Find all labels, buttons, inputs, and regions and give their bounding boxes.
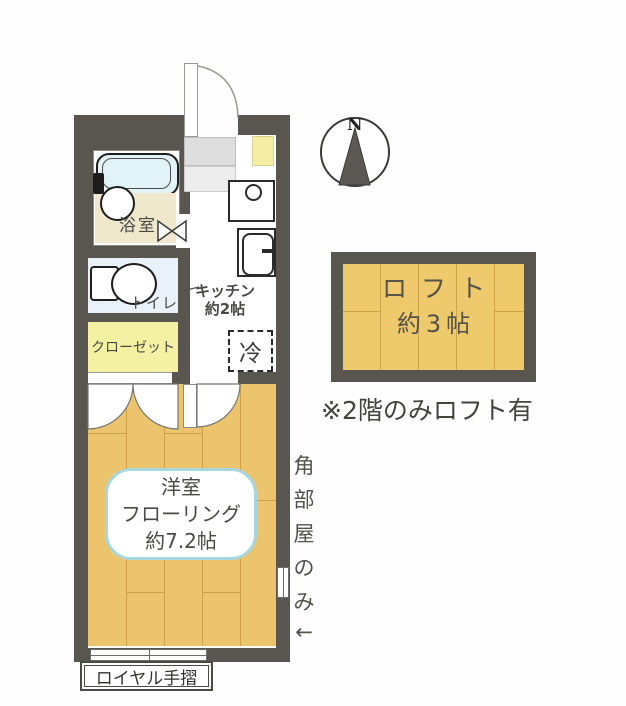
toilet-label: トイレ [130, 292, 178, 313]
corner-room-note: 角 部 屋 の み ← [291, 450, 317, 644]
kitchen-size-label: 約2帖 [194, 299, 256, 317]
corner-note-char: の [294, 552, 315, 582]
corner-note-char: 屋 [294, 518, 315, 548]
wall-top-left [74, 115, 184, 135]
shoe-cabinet [252, 136, 274, 166]
window-east [277, 567, 289, 598]
sink-basin [242, 233, 274, 276]
floorplan-canvas: 浴室 トイレ クローゼット キッチン 約2帖 冷 洋室 [0, 0, 626, 706]
wall-pier-center [172, 372, 190, 384]
fridge-label: 冷 [239, 334, 262, 368]
bathtub-inner-rim [102, 158, 171, 189]
bathroom-label: 浴室 [110, 212, 166, 234]
window-south [90, 649, 207, 661]
bathroom-door-gap [176, 214, 192, 248]
room-door-leaf [183, 384, 197, 428]
corner-note-char: み [294, 586, 315, 616]
fridge-space: 冷 [228, 330, 273, 372]
handrail-label-inner: ロイヤル手摺 [84, 665, 209, 687]
main-room-floor-type: フローリング [121, 501, 241, 528]
window-divider [149, 650, 150, 660]
loft-size-label: 約3帖 [343, 306, 524, 336]
left-arrow-icon: ← [295, 620, 313, 644]
stove-burner [245, 184, 262, 201]
closet-label: クローゼット [91, 337, 175, 357]
closet-floor: クローゼット [88, 322, 178, 372]
handrail-label: ロイヤル手摺 [96, 664, 198, 689]
bath-faucet-unit [93, 173, 104, 194]
kitchen-label: キッチン [194, 281, 256, 299]
room-door-opening [190, 372, 238, 384]
wall-left [74, 115, 88, 662]
entrance-door-leaf [184, 63, 198, 137]
floor-plank-joint [88, 433, 126, 434]
sink-faucet [262, 249, 277, 253]
loft-note: ※2階のみロフト有 [321, 391, 533, 427]
main-room-label-box: 洋室 フローリング 約7.2帖 [105, 468, 257, 560]
window-mullion [283, 568, 284, 597]
floor-plank-joint [126, 592, 164, 593]
wall-band-right [238, 372, 276, 384]
corner-note-char: 部 [294, 484, 315, 514]
handrail-label-box: ロイヤル手摺 [80, 661, 213, 691]
wall-mid-vertical [178, 258, 190, 384]
closet-door-track [88, 372, 172, 384]
compass-north-label: N [347, 115, 363, 135]
corner-note-char: 角 [294, 450, 315, 480]
main-room-type: 洋室 [161, 474, 201, 501]
genkan-upper-step [184, 137, 236, 166]
loft-label: ロフト [343, 272, 524, 302]
floor-plank-joint [164, 433, 202, 434]
wall-toilet-closet-divider [88, 313, 178, 322]
entrance-door-swing-arc [198, 66, 238, 118]
floor-plank-joint [202, 592, 240, 593]
main-room-size: 約7.2帖 [145, 528, 217, 555]
